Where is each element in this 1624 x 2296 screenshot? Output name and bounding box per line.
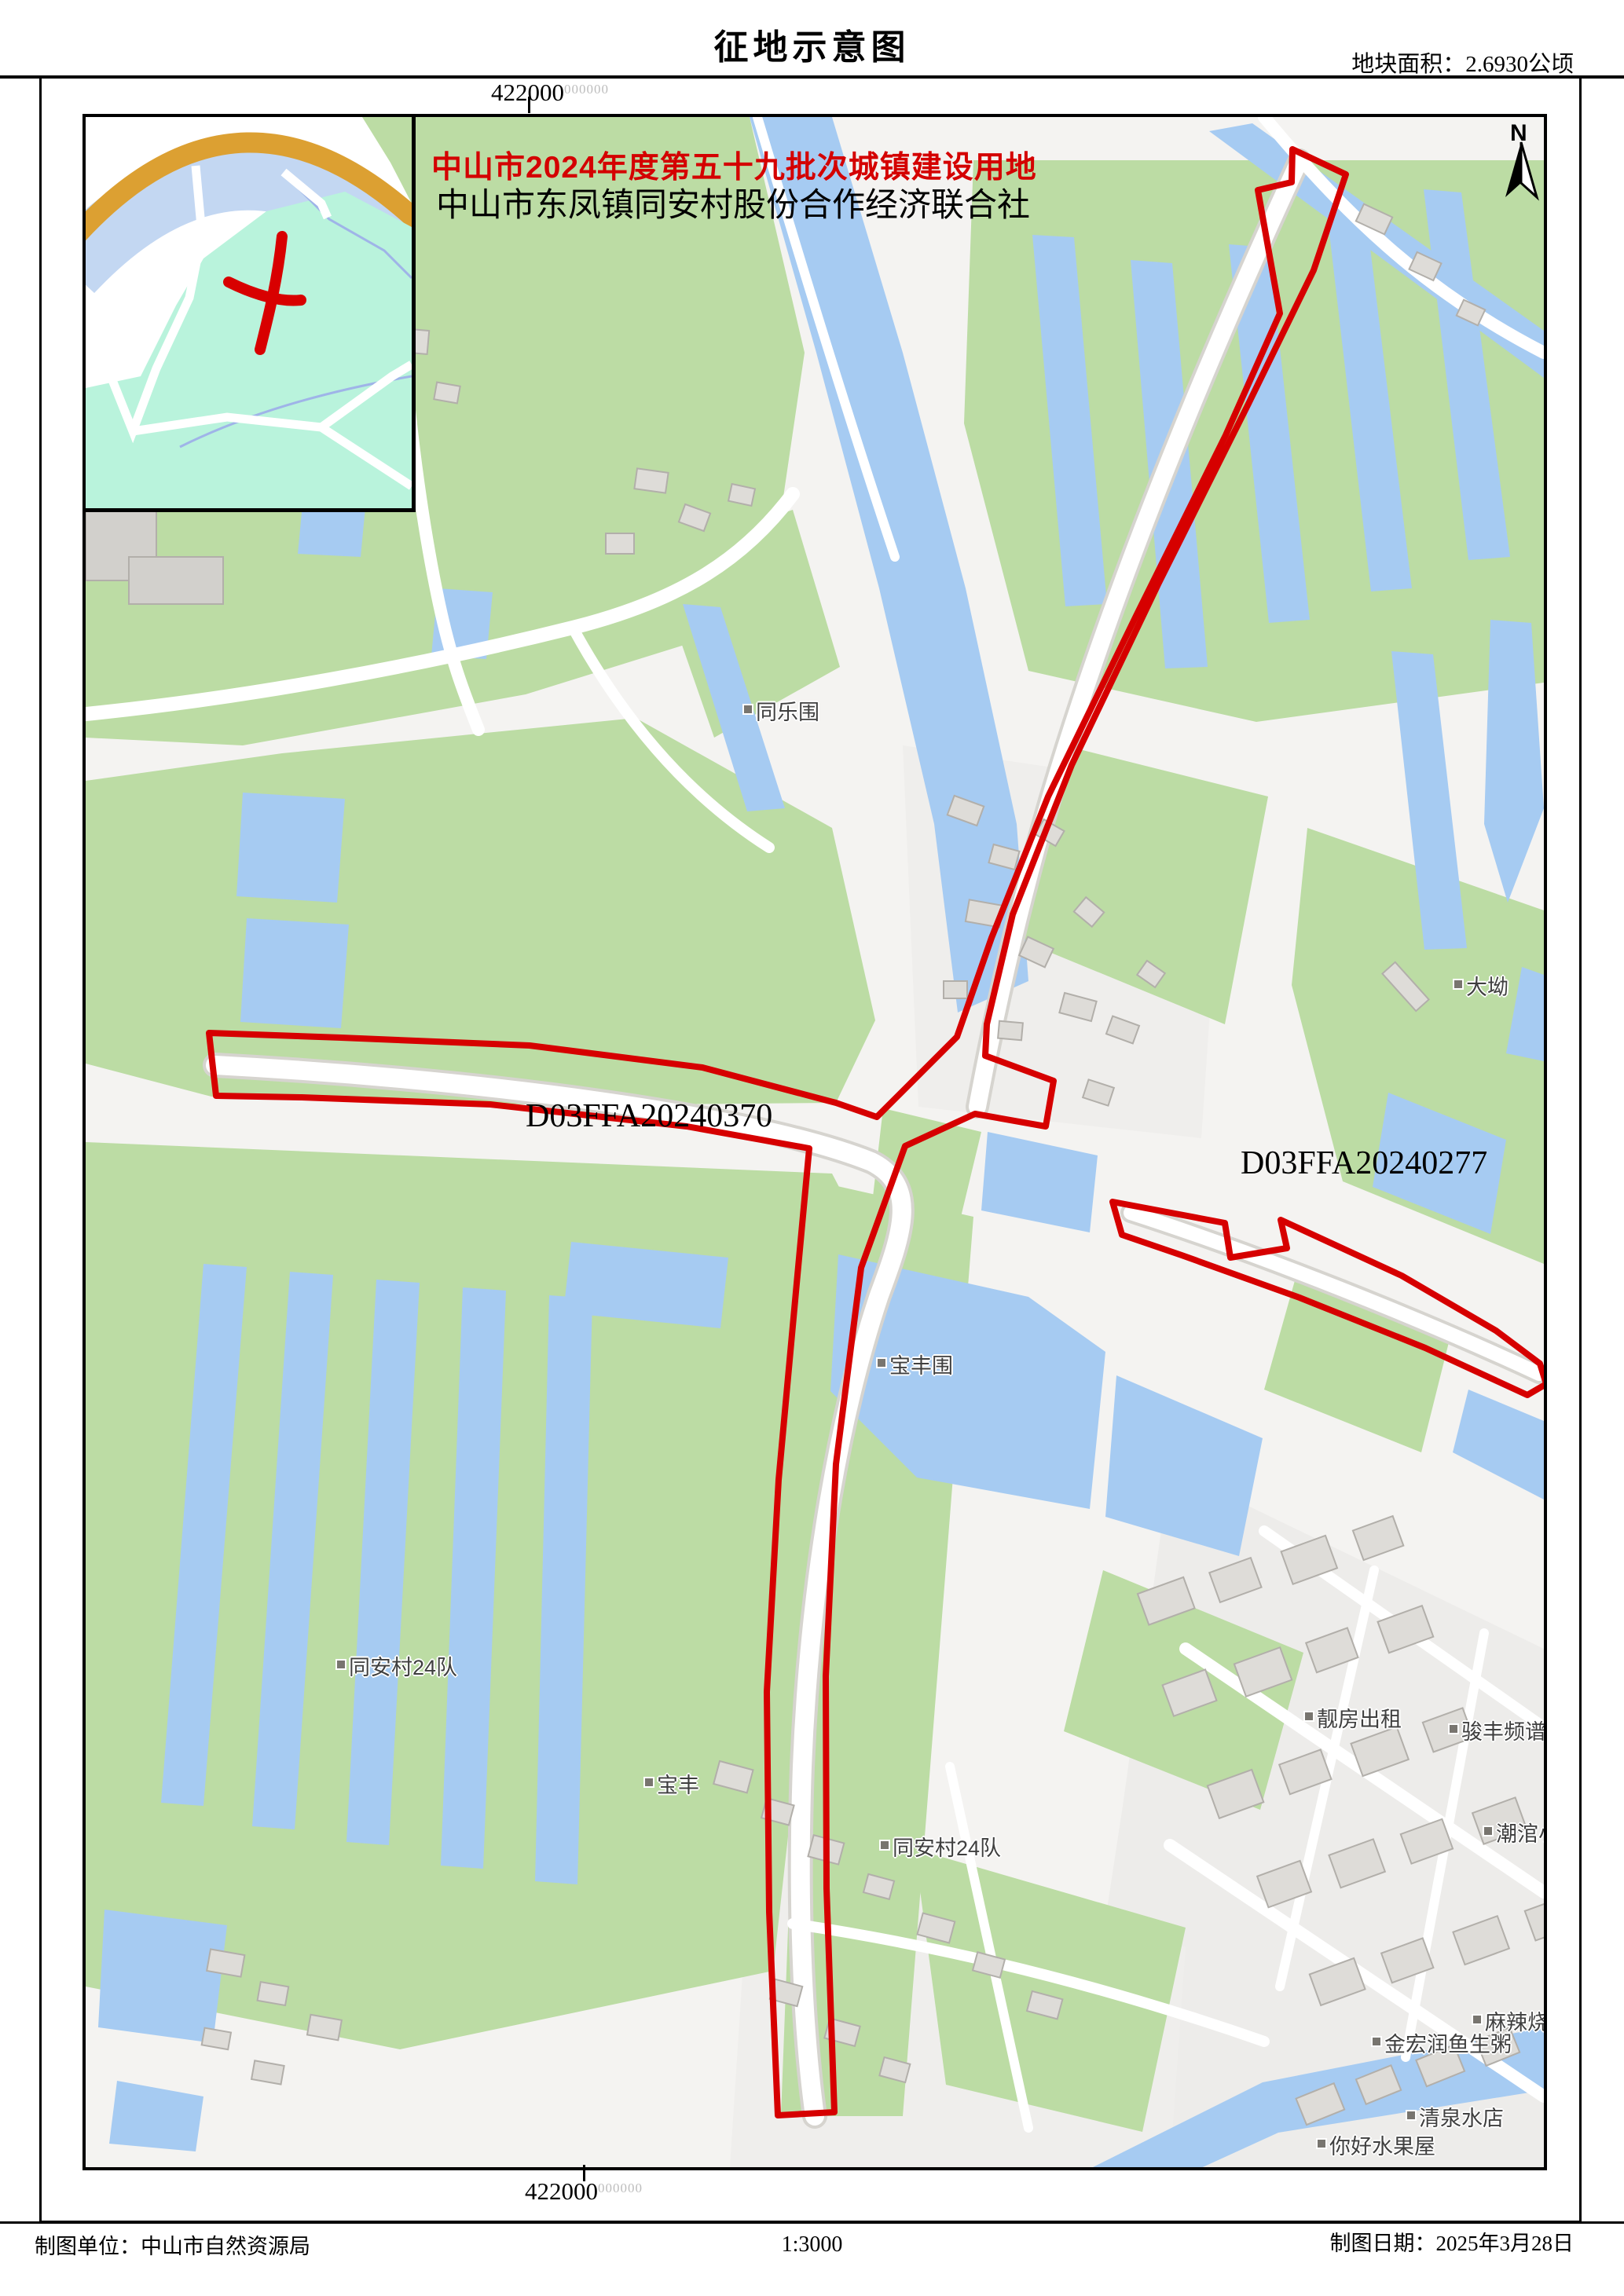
poi-label-text: 大坳 <box>1466 976 1509 999</box>
poi-label: 同安村24队 <box>881 1831 1001 1862</box>
poi-marker-icon <box>337 1661 345 1668</box>
poi-label: 宝丰围 <box>878 1349 953 1379</box>
poi-label: 靓房出租 <box>1305 1702 1402 1733</box>
inset-graphic <box>86 117 412 508</box>
parcel-id-label: D03FFA20240277 <box>1241 1144 1487 1182</box>
poi-marker-icon <box>1450 1725 1457 1733</box>
poi-label: 同乐围 <box>744 695 819 726</box>
org-header-black: 中山市东凤镇同安村股份合作经济联合社 <box>436 178 1030 226</box>
poi-label: 骏丰频谱 <box>1450 1715 1546 1745</box>
poi-marker-icon <box>1484 1827 1492 1835</box>
poi-label-text: 同乐围 <box>756 701 819 724</box>
map-date: 制图日期：2025年3月28日 <box>1330 2226 1575 2257</box>
poi-label-text: 你好水果屋 <box>1329 2135 1435 2159</box>
poi-label: 大坳 <box>1454 970 1509 1001</box>
poi-label-text: 宝丰围 <box>889 1354 953 1378</box>
map-sheet: 征地示意图 地块面积：2.6930公顷 422000000000 <box>0 0 1624 2296</box>
poi-label-text: 靓房出租 <box>1317 1708 1402 1731</box>
poi-label-text: 潮涫小 <box>1496 1822 1547 1846</box>
footer-divider <box>0 2221 1624 2224</box>
main-map: 中山市2024年度第五十九批次城镇建设用地 中山市东凤镇同安村股份合作经济联合社… <box>82 114 1547 2170</box>
poi-marker-icon <box>1318 2140 1325 2148</box>
poi-label: 你好水果屋 <box>1318 2129 1435 2160</box>
poi-marker-icon <box>1454 980 1462 988</box>
poi-marker-icon <box>878 1359 885 1367</box>
poi-label: 潮涫小 <box>1484 1817 1547 1847</box>
poi-label: 清泉水店 <box>1407 2101 1504 2132</box>
parcel-id-label: D03FFA20240370 <box>526 1097 772 1135</box>
poi-marker-icon <box>1407 2111 1415 2119</box>
poi-label-text: 同安村24队 <box>893 1836 1001 1860</box>
grid-tick-top <box>528 97 530 113</box>
poi-label: 金宏润鱼生粥 <box>1373 2027 1512 2058</box>
poi-marker-icon <box>744 705 752 713</box>
north-label: N <box>1510 120 1527 147</box>
footer-bar: 制图单位：中山市自然资源局 1:3000 制图日期：2025年3月28日 <box>0 2226 1624 2273</box>
poi-marker-icon <box>645 1778 653 1786</box>
poi-label-text: 金宏润鱼生粥 <box>1384 2033 1512 2056</box>
poi-label: 同安村24队 <box>337 1650 457 1681</box>
poi-label-text: 清泉水店 <box>1419 2107 1504 2130</box>
coordinate-label-top: 422000000000 <box>491 79 609 107</box>
north-arrow: N <box>1496 120 1546 205</box>
poi-marker-icon <box>1473 2016 1481 2023</box>
poi-marker-icon <box>1373 2038 1380 2045</box>
poi-label-text: 同安村24队 <box>349 1656 457 1679</box>
poi-label-text: 骏丰频谱 <box>1461 1720 1546 1744</box>
poi-marker-icon <box>1305 1712 1313 1720</box>
location-inset-map <box>86 117 416 512</box>
poi-marker-icon <box>881 1841 889 1849</box>
coordinate-label-bottom: 422000000000 <box>525 2177 643 2206</box>
poi-label: 宝丰 <box>645 1768 699 1799</box>
plot-area-note: 地块面积：2.6930公顷 <box>1351 46 1574 79</box>
poi-label-text: 宝丰 <box>657 1774 699 1797</box>
